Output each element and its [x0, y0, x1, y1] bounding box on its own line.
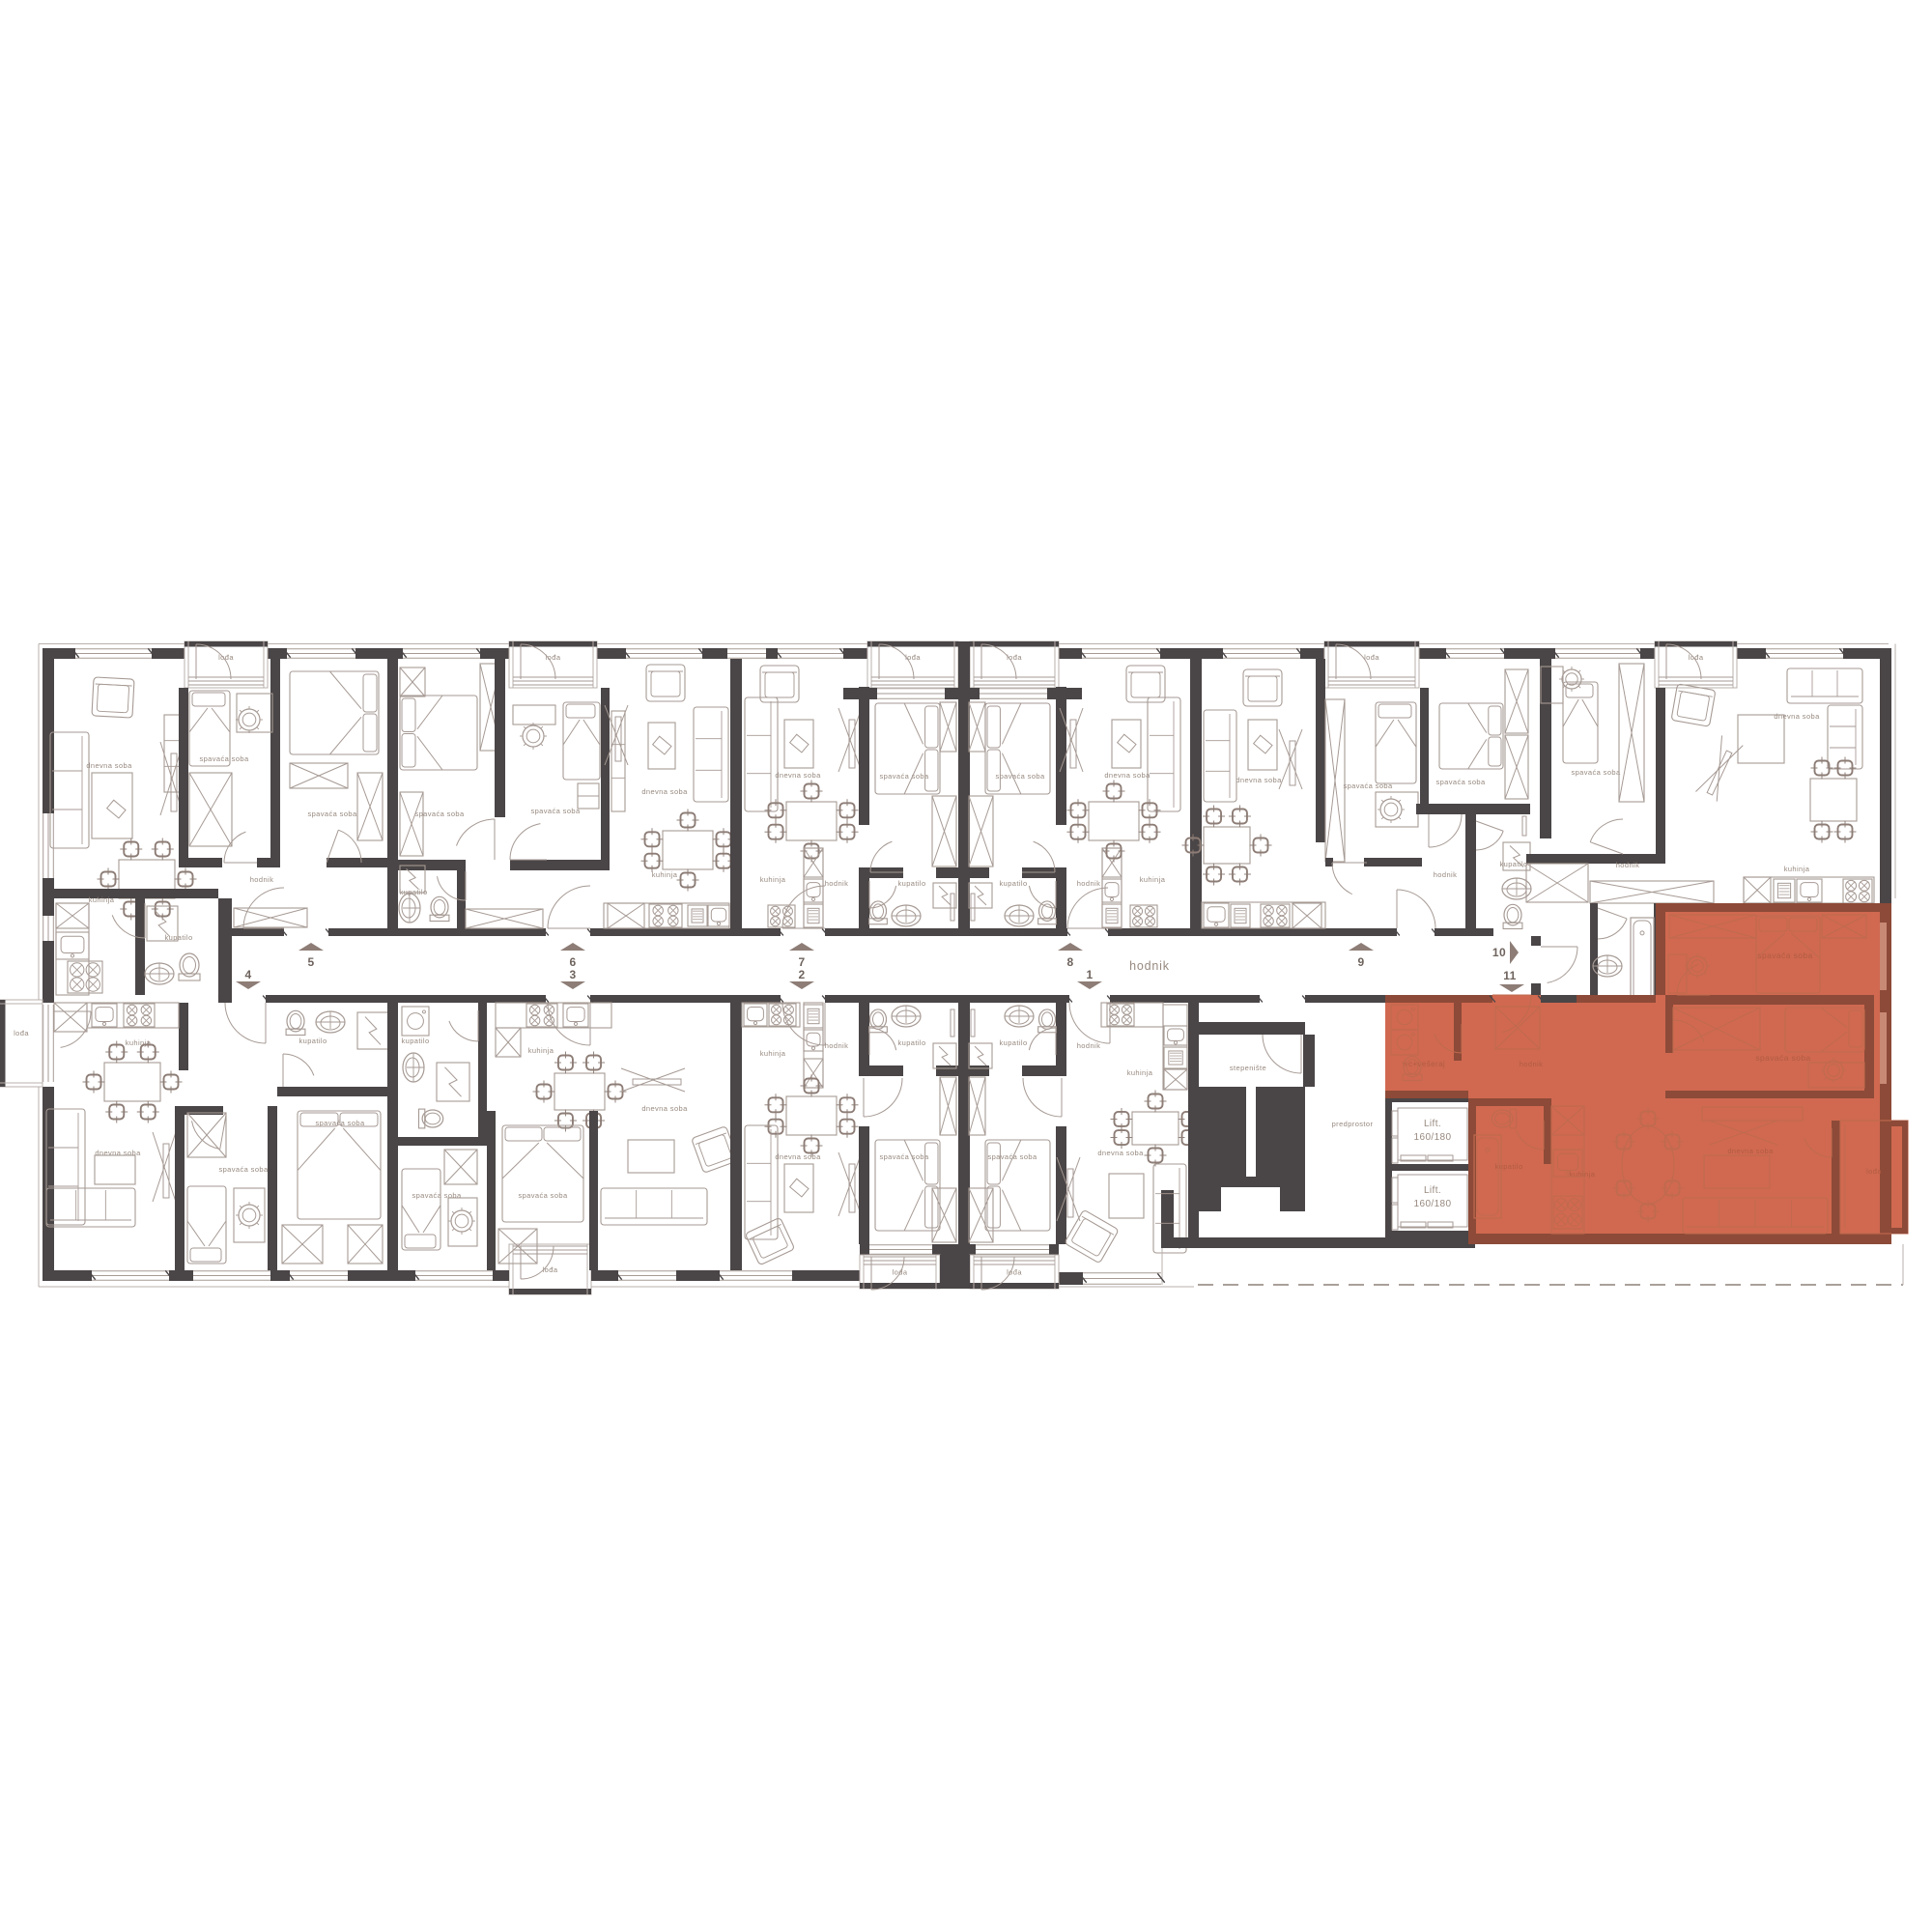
svg-text:spavaća soba: spavaća soba — [879, 772, 929, 781]
svg-text:dnevna soba: dnevna soba — [1104, 771, 1151, 780]
svg-text:stepenište: stepenište — [1230, 1064, 1266, 1072]
svg-text:spavaća soba: spavaća soba — [1435, 778, 1486, 786]
svg-text:kuhinja: kuhinja — [528, 1046, 554, 1055]
svg-text:lođa: lođa — [905, 653, 921, 662]
svg-text:kuhinja: kuhinja — [652, 870, 678, 879]
svg-text:dnevna soba: dnevna soba — [641, 1104, 688, 1113]
svg-text:kuhinja: kuhinja — [760, 1049, 786, 1058]
svg-text:Lift.: Lift. — [1424, 1185, 1441, 1196]
svg-text:spavaća soba: spavaća soba — [1757, 951, 1812, 960]
svg-text:spavaća soba: spavaća soba — [307, 810, 357, 818]
svg-text:hodnik: hodnik — [1077, 879, 1101, 888]
svg-text:Lift.: Lift. — [1424, 1119, 1441, 1129]
svg-text:spavaća soba: spavaća soba — [518, 1191, 568, 1200]
svg-text:dnevna soba: dnevna soba — [86, 761, 132, 770]
svg-text:kupatilo: kupatilo — [897, 879, 925, 888]
svg-text:spavaća soba: spavaća soba — [1343, 781, 1393, 790]
svg-text:kupatilo: kupatilo — [1499, 860, 1527, 868]
svg-text:9: 9 — [1357, 955, 1364, 969]
svg-text:kupatilo: kupatilo — [897, 1038, 925, 1047]
svg-text:kuhinja: kuhinja — [89, 895, 115, 904]
svg-text:6: 6 — [569, 955, 576, 969]
svg-text:kuhinja: kuhinja — [1127, 1068, 1153, 1077]
svg-text:dnevna soba: dnevna soba — [641, 787, 688, 796]
svg-text:lođa: lođa — [14, 1029, 29, 1037]
svg-text:hodnik: hodnik — [250, 875, 274, 884]
svg-text:predprostor: predprostor — [1332, 1120, 1374, 1128]
svg-text:spavaća soba: spavaća soba — [412, 1191, 462, 1200]
svg-text:kuhinja: kuhinja — [1784, 865, 1810, 873]
svg-text:hodnik: hodnik — [1434, 870, 1458, 879]
svg-text:hodnik: hodnik — [1520, 1060, 1544, 1068]
svg-text:5: 5 — [307, 955, 314, 969]
svg-text:hodnik: hodnik — [825, 1041, 849, 1050]
svg-text:dnevna soba: dnevna soba — [775, 1152, 821, 1161]
svg-text:lođa: lođa — [543, 1265, 558, 1274]
svg-text:dnevna soba: dnevna soba — [1774, 712, 1820, 721]
svg-text:hodnik: hodnik — [1616, 861, 1640, 869]
svg-text:dnevna soba: dnevna soba — [1236, 776, 1282, 784]
svg-text:dnevna soba: dnevna soba — [775, 771, 821, 780]
svg-text:160/180: 160/180 — [1414, 1132, 1452, 1143]
svg-text:10: 10 — [1492, 946, 1506, 959]
svg-text:hodnik: hodnik — [1077, 1041, 1101, 1050]
svg-text:dnevna soba: dnevna soba — [95, 1149, 141, 1157]
svg-text:spavaća soba: spavaća soba — [199, 754, 249, 763]
svg-text:kuhinja: kuhinja — [126, 1038, 152, 1047]
svg-text:11: 11 — [1503, 969, 1517, 982]
svg-text:4: 4 — [244, 968, 251, 981]
svg-text:kupatilo: kupatilo — [401, 1037, 429, 1045]
svg-text:hodnik: hodnik — [825, 879, 849, 888]
svg-text:spavaća soba: spavaća soba — [987, 1152, 1037, 1161]
svg-text:lođa: lođa — [1866, 1167, 1882, 1176]
svg-text:160/180: 160/180 — [1414, 1199, 1452, 1209]
svg-text:kuhinja: kuhinja — [760, 875, 786, 884]
svg-text:dnevna soba: dnevna soba — [1727, 1147, 1774, 1155]
svg-text:spavaća soba: spavaća soba — [879, 1152, 929, 1161]
svg-text:1: 1 — [1086, 968, 1093, 981]
svg-text:kupatilo: kupatilo — [298, 1037, 327, 1045]
svg-text:spavaća soba: spavaća soba — [218, 1165, 269, 1174]
svg-text:spavaća soba: spavaća soba — [1755, 1053, 1810, 1063]
svg-text:lođa: lođa — [1364, 653, 1379, 662]
svg-text:spavaća soba: spavaća soba — [414, 810, 465, 818]
svg-text:kuhinja: kuhinja — [1140, 875, 1166, 884]
svg-text:kupatilo: kupatilo — [999, 879, 1027, 888]
svg-text:7: 7 — [798, 955, 805, 969]
svg-text:8: 8 — [1066, 955, 1073, 969]
svg-text:kupatilo: kupatilo — [1494, 1162, 1522, 1171]
svg-text:kupatilo: kupatilo — [999, 1038, 1027, 1047]
svg-text:hodnik: hodnik — [1129, 959, 1170, 973]
svg-text:dnevna soba: dnevna soba — [1097, 1149, 1144, 1157]
svg-text:spavaća soba: spavaća soba — [995, 772, 1045, 781]
svg-text:3: 3 — [569, 968, 576, 981]
svg-text:spavaća soba: spavaća soba — [530, 807, 581, 815]
svg-text:2: 2 — [798, 968, 805, 981]
svg-text:spavaća soba: spavaća soba — [1571, 768, 1621, 777]
